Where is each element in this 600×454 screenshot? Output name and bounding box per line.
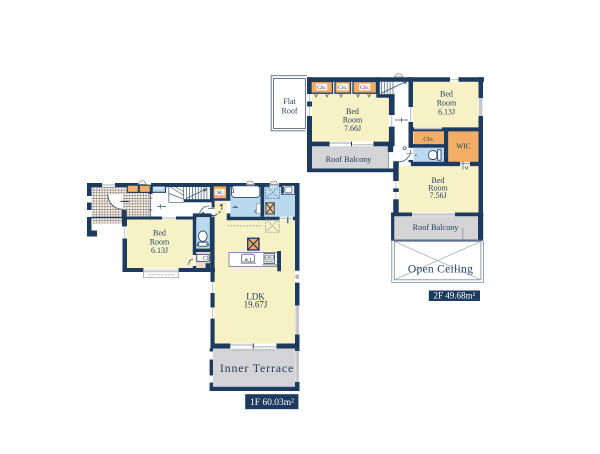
svg-text:7.56J: 7.56J	[429, 191, 446, 200]
svg-text:6.13J: 6.13J	[151, 246, 168, 255]
svg-text:1F 60.03m²: 1F 60.03m²	[250, 398, 294, 408]
svg-text:Inner Terrace: Inner Terrace	[220, 361, 294, 375]
svg-text:Open Ceiling: Open Ceiling	[408, 264, 473, 276]
svg-text:Room: Room	[437, 98, 457, 107]
svg-text:Roof Balcony: Roof Balcony	[413, 223, 460, 232]
svg-text:2F 49.68m²: 2F 49.68m²	[434, 291, 476, 301]
svg-text:St.: St.	[217, 190, 224, 196]
svg-text:19.67J: 19.67J	[244, 299, 268, 309]
svg-text:Clo.: Clo.	[203, 256, 214, 262]
svg-text:Roof Balcony: Roof Balcony	[326, 155, 373, 164]
svg-text:Clo.: Clo.	[423, 136, 434, 143]
svg-text:WIC: WIC	[456, 142, 471, 151]
svg-text:Clo.: Clo.	[317, 85, 327, 91]
svg-text:Clo.: Clo.	[338, 85, 348, 91]
svg-text:Bed: Bed	[153, 229, 166, 238]
svg-text:Flat: Flat	[283, 97, 296, 106]
svg-text:7.66J: 7.66J	[344, 124, 361, 133]
svg-text:Bed: Bed	[440, 89, 453, 98]
svg-text:6.13J: 6.13J	[438, 108, 455, 117]
svg-text:Roof: Roof	[282, 107, 298, 116]
svg-text:Clo.: Clo.	[360, 85, 370, 91]
